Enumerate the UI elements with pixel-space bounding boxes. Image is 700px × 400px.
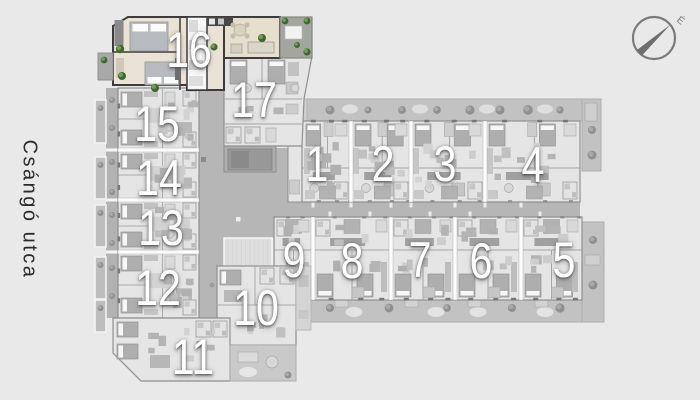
svg-text:8: 8 <box>341 233 364 289</box>
svg-text:9: 9 <box>283 232 306 288</box>
svg-text:4: 4 <box>522 137 545 193</box>
svg-text:10: 10 <box>233 280 279 336</box>
svg-text:11: 11 <box>172 329 215 385</box>
svg-text:1: 1 <box>306 136 329 192</box>
svg-text:7: 7 <box>409 232 432 288</box>
svg-text:15: 15 <box>134 96 180 152</box>
svg-text:3: 3 <box>434 136 457 192</box>
svg-text:6: 6 <box>470 233 493 289</box>
svg-text:14: 14 <box>136 150 182 206</box>
svg-text:16: 16 <box>166 22 212 78</box>
svg-text:17: 17 <box>231 72 277 128</box>
svg-text:5: 5 <box>553 232 576 288</box>
svg-text:12: 12 <box>135 260 181 316</box>
svg-text:2: 2 <box>372 136 395 192</box>
svg-text:13: 13 <box>138 200 184 256</box>
